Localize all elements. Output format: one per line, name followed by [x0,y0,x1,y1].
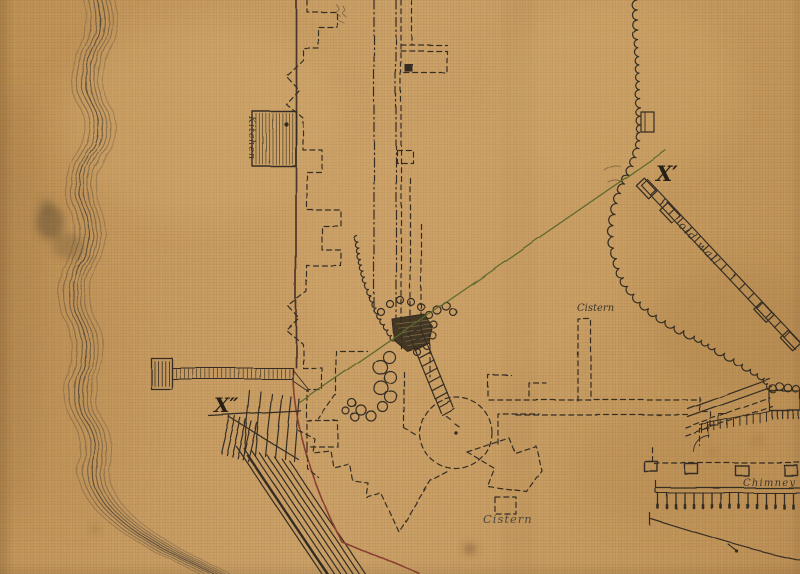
map-drawing: Kitchen X′ X″ old wall Cistern Cistern C… [0,0,800,574]
map-scan: Kitchen X′ X″ old wall Cistern Cistern C… [0,0,800,574]
fabric-grain-overlay [0,0,800,574]
